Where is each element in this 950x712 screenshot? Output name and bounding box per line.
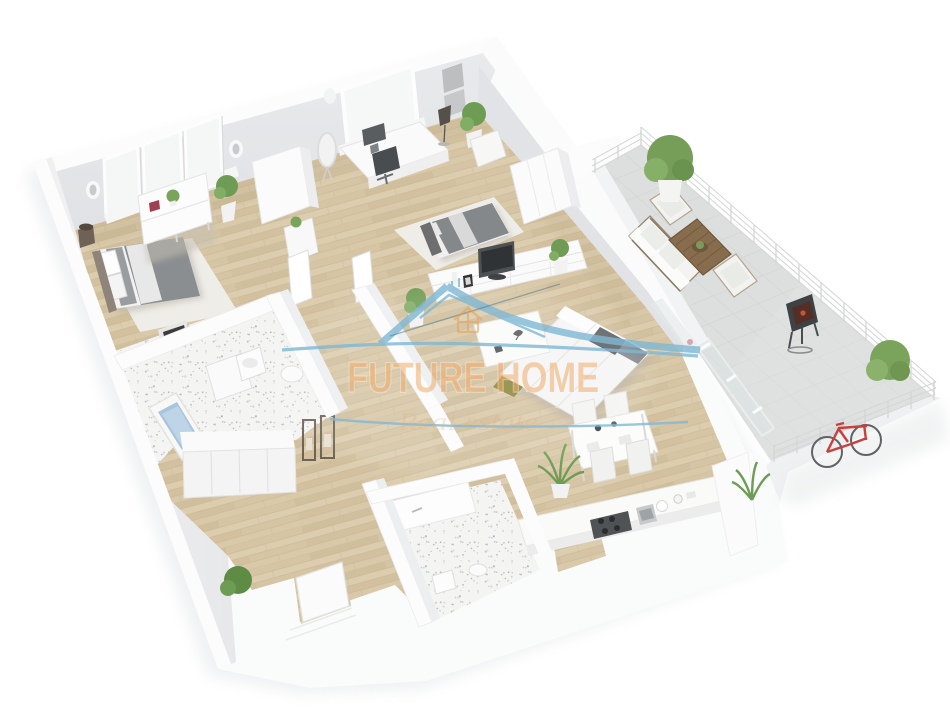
svg-text:FUTURE HOME: FUTURE HOME xyxy=(347,354,599,402)
svg-text:Real estate: Real estate xyxy=(397,409,538,436)
